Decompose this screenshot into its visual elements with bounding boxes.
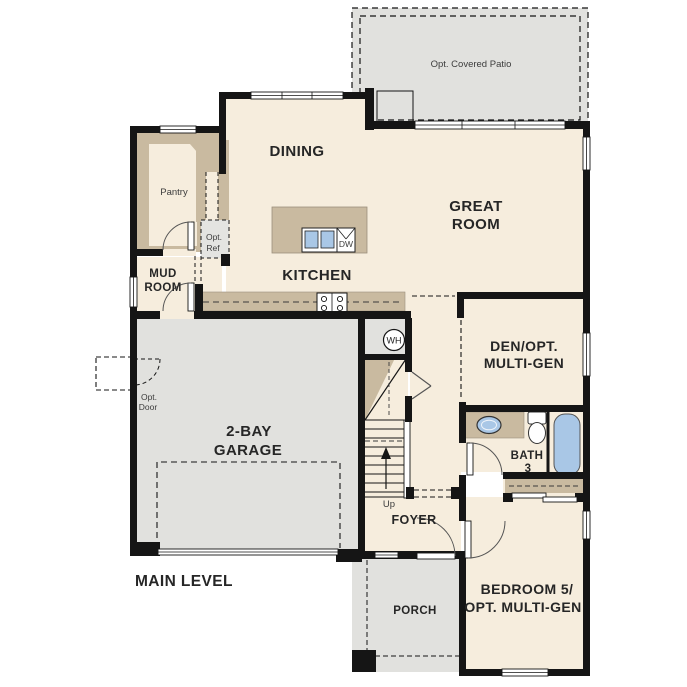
den-label-1: DEN/OPT. [490,338,558,354]
wall-bath-bottom [503,472,583,479]
pantry-opening [206,172,218,220]
pantry-label: Pantry [160,187,188,198]
bath-label-2: 3 [525,463,532,475]
porch-label: PORCH [393,605,437,617]
wall-hall-stub-a [405,318,412,372]
mud-room-label-1: MUD [149,268,176,280]
opt-ref-label-2: Ref [206,243,220,253]
kitchen-label: KITCHEN [282,267,351,284]
wall-bedroom-west [459,557,466,676]
porch-column [352,650,376,672]
opt-door-label-1: Opt. [141,392,157,402]
vanity-sink [477,417,501,434]
wall-foyer-stub-b [451,487,459,499]
wall-closet-stub-left [503,493,513,502]
wall-den-stub [457,292,464,318]
foyer-label: FOYER [391,513,436,527]
opt-door-label-2: Door [139,402,158,412]
great-room-label-2: ROOM [452,216,500,233]
floor-plan-svg: WH Opt. Covered Patio DINING GREAT ROOM … [0,0,687,687]
wall-bath-top [459,405,583,412]
wall-den-divider [457,292,590,299]
wall-mud-east-stub [195,284,203,311]
garage-label-1: 2-BAY [226,423,272,440]
sink-basin-left [305,231,318,248]
great-room-label-1: GREAT [449,198,502,215]
wall-whcloset-bottom [365,354,410,360]
closet-slider-panel-a [512,493,546,498]
den-label-2: MULTI-GEN [484,355,564,371]
wall-west [130,126,137,550]
pantry-door-leaf [188,222,194,250]
wall-stair-west [358,318,365,558]
sink-basin-right [321,231,334,248]
bath-label-1: BATH [511,450,544,462]
floor-plan-page: WH Opt. Covered Patio DINING GREAT ROOM … [0,0,687,687]
wall-hall-stub-b [405,396,412,422]
bedroom-label-2: OPT. MULTI-GEN [464,599,581,615]
stairs-up-label: Up [383,499,395,510]
wall-kitchen-nw-stub [221,254,230,266]
stair-handrail [404,420,410,498]
bathtub [554,414,580,475]
dining-label: DINING [270,143,325,160]
dishwasher-label: DW [339,239,353,249]
patio-label: Opt. Covered Patio [431,59,512,70]
mud-room-label-2: ROOM [144,282,181,294]
mud-door-leaf [188,283,194,311]
main-level-label: MAIN LEVEL [135,573,233,590]
opt-door-dashed-box [96,357,134,390]
front-door-leaf [417,553,455,559]
bedroom-label-1: BEDROOM 5/ [481,581,574,597]
toilet-bowl [529,423,546,444]
closet-slider-panel-b [543,497,577,502]
wall-garage-sw-block [130,542,160,556]
mud-garage-door-opening [160,311,194,319]
water-heater-label: WH [387,336,402,346]
wall-bath-west-a [459,402,466,443]
wall-foyer-stub-a [406,487,414,499]
garage-label-2: GARAGE [214,442,282,459]
water-heater: WH [384,330,405,351]
wall-bath-west-b [459,475,466,521]
wall-east [583,121,590,676]
opt-ref-label-1: Opt. [206,232,222,242]
wall-dining-west [219,92,226,174]
bath-door-leaf [467,443,473,475]
wall-garage-se-block [336,549,362,562]
bedroom-door-leaf [465,521,471,558]
